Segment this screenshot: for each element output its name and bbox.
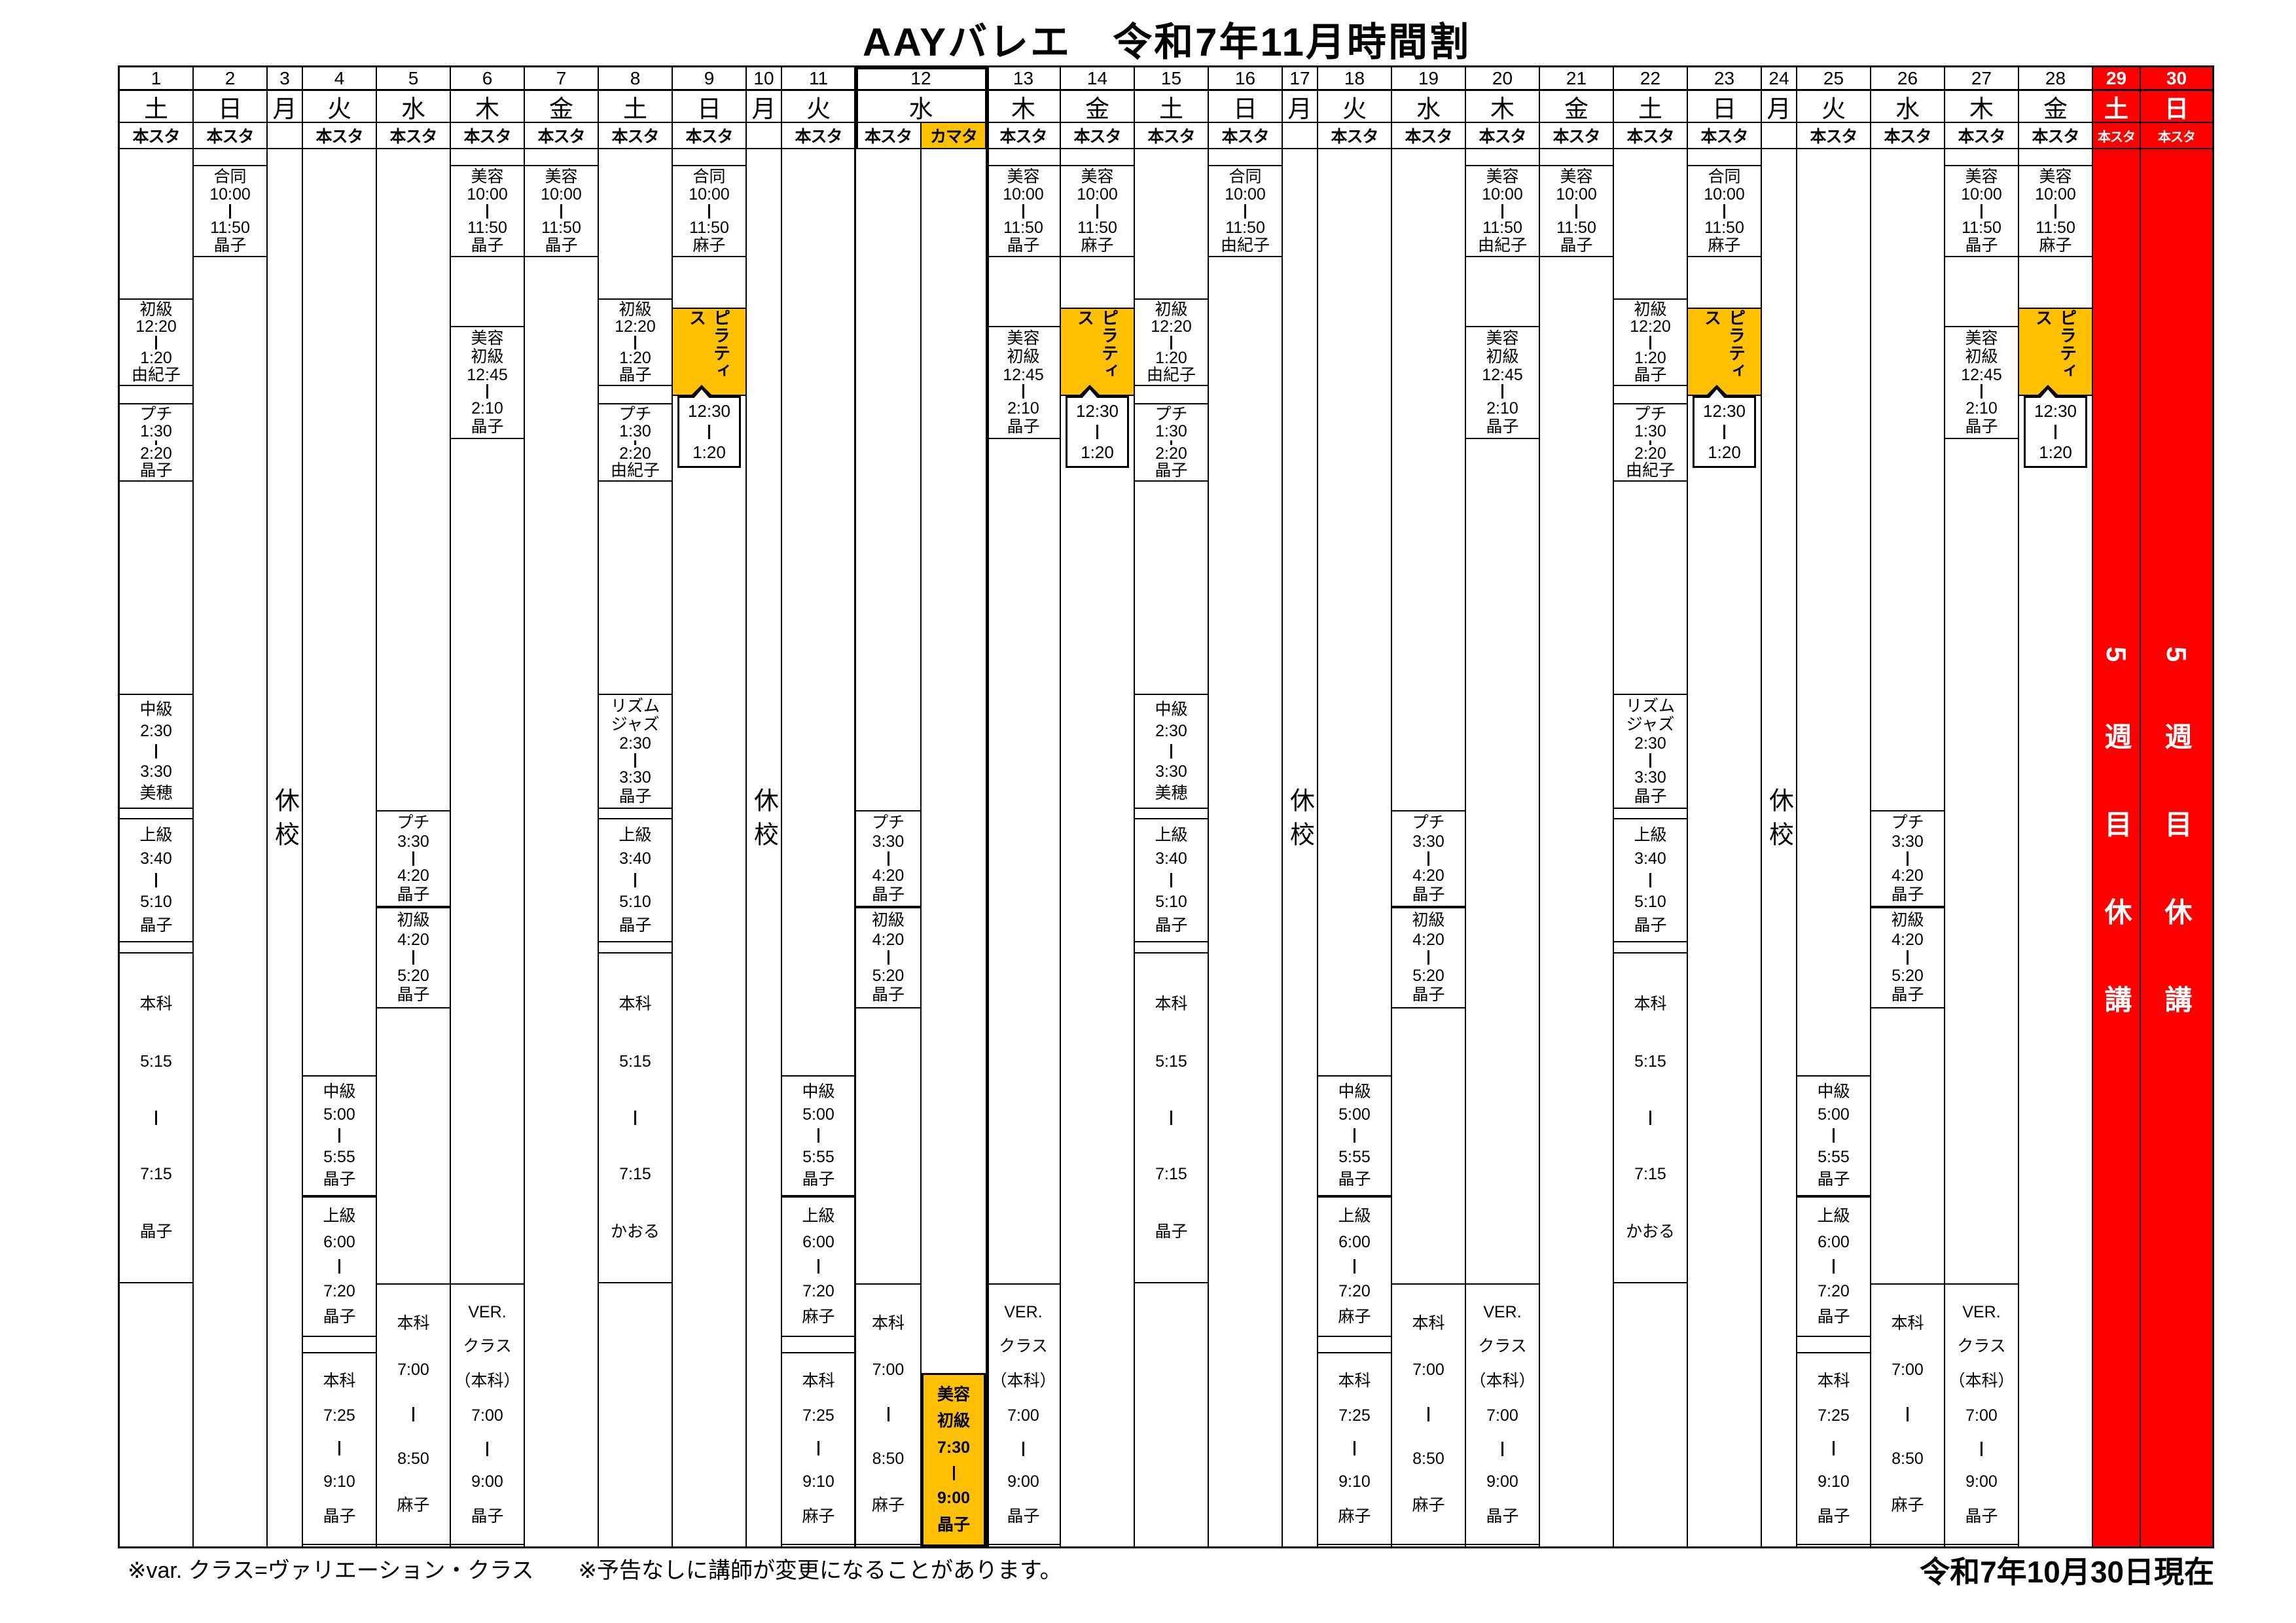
day-column-29: 29土本スタ5週目休講 — [2093, 67, 2141, 1546]
time-connector — [1907, 851, 1909, 866]
class-text-line: 6:00 — [1338, 1234, 1371, 1251]
class-text-line: 晶子 — [1412, 986, 1444, 1003]
day-schedule-area: プチ3:304:20晶子初級4:205:20晶子本科7:008:50麻子美容初級… — [856, 149, 986, 1546]
class-text-line: 5:10 — [1155, 893, 1187, 910]
class-block: VER.クラス（本科）7:009:00晶子 — [1466, 1283, 1539, 1545]
class-text-line: 本科 — [1634, 995, 1666, 1012]
time-connector — [1170, 1111, 1172, 1125]
class-text-line: 2:30 — [1634, 735, 1666, 752]
class-text-line: 晶子 — [545, 237, 577, 254]
studio-cell: 本スタ — [1688, 123, 1761, 149]
class-text-line: 晶子 — [323, 1508, 355, 1525]
class-text-line: プチ — [619, 406, 651, 423]
bubble-notch — [1708, 389, 1726, 400]
class-text-line: 初級 — [1486, 348, 1518, 365]
class-text-line: 1:20 — [619, 349, 651, 366]
time-connector — [338, 1259, 340, 1274]
class-text-line: 7:15 — [1155, 1166, 1187, 1183]
day-column-2: 2日本スタ合同10:0011:50晶子 — [194, 67, 268, 1546]
time-connector — [155, 744, 157, 758]
pilates-time-bubble: 12:301:20 — [1693, 396, 1756, 468]
class-text-line: 3:30 — [619, 769, 651, 786]
class-text-line: 上級 — [1338, 1207, 1371, 1224]
class-text-line: 2:30 — [140, 722, 172, 740]
class-block: 初級12:201:20由紀子 — [1135, 298, 1208, 386]
class-text-line: 4:20 — [397, 867, 429, 884]
day-number: 27 — [1945, 67, 2018, 91]
class-text-line: VER. — [1962, 1304, 2000, 1321]
day-number: 8 — [599, 67, 672, 91]
class-text-line: 美容 — [1560, 168, 1592, 185]
class-text-line: 晶子 — [1891, 886, 1924, 903]
day-column-13: 13木本スタ美容10:0011:50晶子美容初級12:452:10晶子VER.ク… — [987, 67, 1061, 1546]
studio-cell: 本スタ — [1466, 123, 1539, 149]
class-text-line: 5:15 — [1634, 1053, 1666, 1070]
studio-cell-kamata: カマタ — [920, 123, 986, 148]
class-text-line: 晶子 — [1338, 1171, 1371, 1188]
class-text-line: 9:10 — [1338, 1473, 1371, 1490]
class-block: 初級4:205:20晶子 — [1392, 907, 1465, 1008]
class-text-line: 本科 — [1817, 1372, 1850, 1389]
class-text-line: 6:00 — [802, 1234, 834, 1251]
day-of-week: 水 — [377, 91, 450, 123]
class-text-line: VER. — [1004, 1304, 1042, 1321]
class-text-line: 本科 — [619, 995, 651, 1012]
day-of-week: 火 — [1318, 91, 1391, 123]
class-text-line: 7:20 — [1338, 1283, 1371, 1300]
class-text-line: 10:00 — [1704, 186, 1745, 203]
time-connector — [1170, 336, 1172, 349]
day-number: 12 — [856, 67, 986, 91]
day-number: 13 — [987, 67, 1060, 91]
class-text-line: 3:30 — [872, 833, 905, 850]
class-text-line: 由紀子 — [1147, 366, 1196, 383]
class-text-line: 7:00 — [872, 1361, 905, 1378]
day-column-7: 7金本スタ美容10:0011:50晶子 — [525, 67, 599, 1546]
class-text-line: 10:00 — [541, 186, 582, 203]
day-of-week: 火 — [782, 91, 855, 123]
time-connector — [1833, 1441, 1835, 1455]
time-connector — [708, 425, 710, 439]
class-text-line: 12:20 — [1630, 318, 1671, 335]
day-column-5: 5水本スタプチ3:304:20晶子初級4:205:20晶子本科7:008:50麻… — [377, 67, 451, 1546]
class-text-line: 美容 — [471, 168, 503, 185]
time-connector — [1907, 950, 1909, 965]
class-text-line: 美容 — [1007, 330, 1039, 347]
class-text-line: 3:40 — [619, 850, 651, 867]
class-text-line: 中級 — [802, 1083, 834, 1100]
studio-cell — [1762, 123, 1796, 149]
day-of-week: 日 — [1209, 91, 1282, 123]
class-text-line: 11:50 — [1704, 219, 1744, 236]
class-block: 上級6:007:20麻子 — [1318, 1196, 1391, 1337]
day-schedule-area: 美容10:0011:50由紀子美容初級12:452:10晶子VER.クラス（本科… — [1466, 149, 1539, 1546]
time-connector — [1427, 950, 1429, 965]
class-block: 美容10:0011:50晶子 — [525, 165, 598, 257]
footnote-date: 令和7年10月30日現在 — [1920, 1548, 2214, 1592]
class-text-line: 5:15 — [1155, 1053, 1187, 1070]
class-text-line: 7:15 — [619, 1166, 651, 1183]
class-text-line: 11:50 — [467, 219, 507, 236]
time-connector — [1833, 1259, 1835, 1274]
class-text-line: 3:30 — [140, 763, 172, 780]
day-column-8: 8土本スタ初級12:201:20晶子プチ1:302:20由紀子リズムジャズ2:3… — [599, 67, 673, 1546]
day-column-15: 15土本スタ初級12:201:20由紀子プチ1:302:20晶子中級2:303:… — [1135, 67, 1209, 1546]
class-text-line: 1:20 — [692, 442, 726, 463]
timetable-page: AAYバレエ 令和7年11月時間割 1土本スタ初級12:201:20由紀子プチ1… — [0, 0, 2296, 1623]
class-text-line: 美容 — [545, 168, 577, 185]
class-text-line: 合同 — [692, 168, 725, 185]
class-text-line: 美容 — [1486, 168, 1518, 185]
class-text-line: 3:30 — [1155, 763, 1187, 780]
day-schedule-area: 休校 — [268, 149, 302, 1546]
class-text-line: クラス — [463, 1338, 512, 1355]
class-text-line: 3:30 — [1892, 833, 1924, 850]
class-text-line: 初級 — [872, 912, 905, 929]
class-text-line: 麻子 — [1708, 237, 1740, 254]
day-of-week: 木 — [1466, 91, 1539, 123]
class-text-line: 12:30 — [1076, 401, 1119, 421]
class-text-line: 1:30 — [619, 423, 651, 440]
class-text-line: 中級 — [323, 1083, 355, 1100]
studio-cell: 本スタ — [673, 123, 745, 149]
class-text-line: 5:10 — [619, 893, 651, 910]
time-connector — [1981, 384, 1982, 399]
class-text-line: 1:30 — [140, 423, 172, 440]
day-schedule-area: 美容10:0011:50麻子ピラティス12:301:20 — [2019, 149, 2092, 1546]
day-number: 26 — [1871, 67, 1944, 91]
time-connector — [1170, 744, 1172, 758]
class-text-line: 2:30 — [619, 735, 651, 752]
class-text-line: （本科） — [1469, 1372, 1535, 1389]
day-column-18: 18火本スタ中級5:005:55晶子上級6:007:20麻子本科7:259:10… — [1318, 67, 1392, 1546]
day-column-25: 25火本スタ中級5:005:55晶子上級6:007:20晶子本科7:259:10… — [1797, 67, 1871, 1546]
class-text-line: 晶子 — [1486, 418, 1518, 435]
class-text-line: 11:50 — [1482, 219, 1522, 236]
class-text-line: 初級 — [619, 301, 651, 318]
day-schedule-area: 美容10:0011:50麻子ピラティス12:301:20 — [1061, 149, 1134, 1546]
class-text-line: 由紀子 — [1478, 237, 1527, 254]
class-text-line: 10:00 — [209, 186, 251, 203]
bubble-notch — [2039, 389, 2057, 400]
time-connector — [486, 1442, 488, 1456]
class-text-line: 9:10 — [1818, 1473, 1850, 1490]
studio-cell-main: 本スタ — [856, 123, 920, 148]
class-text-line: 本科 — [139, 995, 172, 1012]
class-text-line: 晶子 — [471, 418, 503, 435]
class-text-line: 9:10 — [323, 1473, 355, 1490]
time-connector — [1022, 204, 1024, 219]
class-text-line: 11:50 — [1556, 219, 1596, 236]
class-text-line: 4:20 — [1892, 867, 1924, 884]
time-connector — [1833, 1128, 1835, 1143]
class-text-line: 美容 — [937, 1386, 970, 1403]
time-connector — [1354, 1128, 1355, 1143]
day-schedule-area: 初級12:201:20晶子プチ1:302:20由紀子リズムジャズ2:303:30… — [1614, 149, 1687, 1546]
class-text-line: 麻子 — [1338, 1308, 1371, 1325]
class-text-line: 晶子 — [397, 986, 429, 1003]
studio-cell: 本スタ — [377, 123, 450, 149]
class-text-line: 6:00 — [1818, 1234, 1850, 1251]
class-block: 本科7:259:10晶子 — [1797, 1352, 1870, 1545]
pilates-label: ピラティス — [685, 309, 734, 395]
studio-cell: 本スタ — [525, 123, 598, 149]
class-block: プチ1:302:20由紀子 — [599, 403, 672, 482]
class-text-line: 晶子 — [1965, 237, 1998, 254]
class-text-line: 麻子 — [692, 237, 725, 254]
class-block: 美容10:0011:50由紀子 — [1466, 165, 1539, 257]
time-connector — [1575, 204, 1577, 219]
day-of-week: 水 — [856, 91, 986, 123]
closed-label: 休校 — [1761, 787, 1797, 855]
day-schedule-area: プチ3:304:20晶子初級4:205:20晶子本科7:008:50麻子 — [377, 149, 450, 1546]
class-text-line: 晶子 — [1817, 1308, 1850, 1325]
time-connector — [1354, 1441, 1355, 1455]
day-number: 17 — [1283, 67, 1317, 91]
class-text-line: 晶子 — [1634, 366, 1666, 383]
pilates-time-bubble: 12:301:20 — [2024, 396, 2087, 468]
class-text-line: （本科） — [454, 1372, 520, 1389]
class-text-line: 5:00 — [1338, 1106, 1371, 1123]
class-text-line: 5:20 — [872, 967, 905, 984]
day-schedule-area: 中級5:005:55晶子上級6:007:20麻子本科7:259:10麻子 — [782, 149, 855, 1546]
day-number: 28 — [2019, 67, 2092, 91]
studio-cell: 本スタ — [2093, 123, 2140, 149]
class-text-line: 3:30 — [1412, 833, 1444, 850]
class-text-line: 5:20 — [1412, 967, 1444, 984]
class-text-line: 1:20 — [140, 349, 172, 366]
time-connector — [708, 204, 710, 219]
class-text-line: 初級 — [1965, 348, 1998, 365]
time-connector — [1649, 336, 1651, 349]
day-number: 20 — [1466, 67, 1539, 91]
day-number: 25 — [1797, 67, 1870, 91]
closed-label: 休校 — [746, 787, 782, 855]
class-text-line: （本科） — [990, 1372, 1056, 1389]
day-column-14: 14金本スタ美容10:0011:50麻子ピラティス12:301:20 — [1061, 67, 1135, 1546]
studio-cell: 本スタ — [1209, 123, 1282, 149]
class-text-line: 上級 — [1817, 1207, 1850, 1224]
pilates-block: ピラティス — [2019, 308, 2092, 396]
class-block: 中級5:005:55晶子 — [1797, 1075, 1870, 1196]
class-text-line: 晶子 — [619, 788, 651, 805]
day-column-23: 23日本スタ合同10:0011:50麻子ピラティス12:301:20 — [1688, 67, 1762, 1546]
day-column-28: 28金本スタ美容10:0011:50麻子ピラティス12:301:20 — [2019, 67, 2093, 1546]
class-block: リズムジャズ2:303:30晶子 — [599, 694, 672, 809]
day-schedule-area: 休校 — [1762, 149, 1796, 1546]
class-text-line: 7:30 — [937, 1439, 970, 1456]
main-studio-subcolumn: プチ3:304:20晶子初級4:205:20晶子本科7:008:50麻子 — [856, 149, 920, 1546]
class-text-line: 初級 — [471, 348, 503, 365]
pilates-time-bubble: 12:301:20 — [1066, 396, 1129, 468]
studio-cell: 本スタ — [194, 123, 266, 149]
day-of-week: 金 — [525, 91, 598, 123]
class-block: 合同10:0011:50晶子 — [194, 165, 266, 257]
class-block: 本科5:157:15かおる — [1614, 952, 1687, 1283]
class-text-line: 5:00 — [323, 1106, 355, 1123]
class-block: プチ3:304:20晶子 — [1871, 810, 1944, 907]
time-connector — [1427, 1407, 1429, 1421]
class-text-line: 晶子 — [1155, 917, 1187, 934]
class-text-line: 美穂 — [139, 785, 172, 802]
class-text-line: 2:20 — [140, 445, 172, 462]
class-block: 美容10:0011:50晶子 — [1945, 165, 2018, 257]
class-text-line: 合同 — [213, 168, 246, 185]
day-column-3: 3月休校 — [268, 67, 303, 1546]
class-text-line: 9:00 — [937, 1489, 970, 1507]
class-text-line: 8:50 — [397, 1450, 429, 1467]
class-text-line: 9:00 — [1965, 1473, 1998, 1490]
class-text-line: 8:50 — [1892, 1450, 1924, 1467]
fifth-week-holiday-label: 5週目休講 — [2157, 647, 2197, 1073]
class-text-line: 7:20 — [1818, 1283, 1850, 1300]
time-connector — [486, 204, 488, 219]
day-of-week: 木 — [451, 91, 524, 123]
class-text-line: 4:20 — [397, 931, 429, 948]
footnote-variation: ※var. クラス=ヴァリエーション・クラス ※予告なしに講師が変更になることが… — [128, 1552, 1062, 1584]
day-schedule-area: 中級5:005:55晶子上級6:007:20晶子本科7:259:10晶子 — [303, 149, 376, 1546]
class-text-line: 2:10 — [471, 400, 503, 417]
class-text-line: リズム — [611, 698, 660, 715]
day-number: 4 — [303, 67, 376, 91]
pilates-label: ピラティス — [1073, 309, 1122, 395]
class-block: 中級2:303:30美穂 — [1135, 694, 1208, 809]
class-text-line: 上級 — [139, 827, 172, 844]
day-number: 24 — [1762, 67, 1796, 91]
studio-cell: 本スタ — [782, 123, 855, 149]
class-text-line: プチ — [1412, 814, 1444, 831]
class-text-line: 晶子 — [1634, 788, 1666, 805]
time-connector — [817, 1128, 819, 1143]
day-schedule-area: プチ3:304:20晶子初級4:205:20晶子本科7:008:50麻子 — [1871, 149, 1944, 1546]
class-text-line: 中級 — [1338, 1083, 1371, 1100]
class-text-line: 合同 — [1229, 168, 1261, 185]
class-text-line: 美穂 — [1155, 785, 1187, 802]
day-schedule-area: 5週目休講 — [2141, 149, 2212, 1546]
class-text-line: 1:30 — [1634, 423, 1666, 440]
day-schedule-area: プチ3:304:20晶子初級4:205:20晶子本科7:008:50麻子 — [1392, 149, 1465, 1546]
day-schedule-area: 美容10:0011:50晶子 — [525, 149, 598, 1546]
class-text-line: 11:50 — [689, 219, 729, 236]
class-text-line: 2:20 — [1155, 445, 1187, 462]
class-block: VER.クラス（本科）7:009:00晶子 — [1945, 1283, 2018, 1545]
bubble-notch — [1081, 389, 1099, 400]
class-text-line: 5:10 — [140, 893, 172, 910]
day-column-16: 16日本スタ合同10:0011:50由紀子 — [1209, 67, 1283, 1546]
class-text-line: 7:00 — [1412, 1361, 1444, 1378]
class-text-line: 12:20 — [615, 318, 656, 335]
fifth-week-holiday-label: 5週目休講 — [2096, 647, 2136, 1073]
class-text-line: 晶子 — [1155, 1223, 1187, 1240]
class-text-line: 7:25 — [1338, 1407, 1371, 1424]
class-text-line: 2:10 — [1486, 400, 1518, 417]
class-text-line: 10:00 — [1225, 186, 1266, 203]
class-block: 本科5:157:15晶子 — [120, 952, 192, 1283]
studio-cell: 本スタ — [987, 123, 1060, 149]
class-text-line: 晶子 — [139, 1223, 172, 1240]
class-text-line: 5:15 — [140, 1053, 172, 1070]
day-number: 18 — [1318, 67, 1391, 91]
day-number: 15 — [1135, 67, 1208, 91]
class-text-line: 上級 — [619, 827, 651, 844]
class-text-line: 初級 — [1412, 912, 1444, 929]
pilates-block: ピラティス — [1061, 308, 1134, 396]
class-text-line: 麻子 — [802, 1508, 834, 1525]
time-connector — [1723, 204, 1725, 219]
class-text-line: 晶子 — [1634, 917, 1666, 934]
class-text-line: 麻子 — [1081, 237, 1113, 254]
time-connector — [155, 336, 157, 349]
pilates-label: ピラティス — [2032, 309, 2080, 395]
class-text-line: 4:20 — [1412, 931, 1444, 948]
class-text-line: 12:20 — [1151, 318, 1192, 335]
class-text-line: 3:30 — [397, 833, 429, 850]
class-text-line: 合同 — [1708, 168, 1740, 185]
class-text-line: 7:20 — [802, 1283, 834, 1300]
class-text-line: 本科 — [872, 1315, 905, 1332]
class-text-line: 晶子 — [1891, 986, 1924, 1003]
time-connector — [155, 1111, 157, 1125]
class-text-line: 晶子 — [1965, 418, 1998, 435]
class-block: 上級6:007:20麻子 — [782, 1196, 855, 1337]
studio-cell — [268, 123, 302, 149]
class-text-line: 10:00 — [467, 186, 508, 203]
class-text-line: 3:40 — [1155, 850, 1187, 867]
class-text-line: 晶子 — [1007, 1508, 1039, 1525]
class-text-line: 4:20 — [872, 931, 905, 948]
class-block: 初級12:201:20晶子 — [599, 298, 672, 386]
day-column-12: 12水本スタカマタプチ3:304:20晶子初級4:205:20晶子本科7:008… — [856, 67, 987, 1546]
class-text-line: 美容 — [2039, 168, 2072, 185]
class-text-line: 本科 — [323, 1372, 355, 1389]
class-text-line: 晶子 — [1965, 1508, 1998, 1525]
day-schedule-area: 初級12:201:20晶子プチ1:302:20由紀子リズムジャズ2:303:30… — [599, 149, 672, 1546]
class-text-line: 初級 — [397, 912, 429, 929]
time-connector — [1981, 204, 1982, 219]
studio-cell: 本スタ — [451, 123, 524, 149]
time-connector — [1981, 1442, 1982, 1456]
day-of-week: 木 — [1945, 91, 2018, 123]
time-connector — [412, 851, 414, 866]
day-number: 16 — [1209, 67, 1282, 91]
time-connector — [1096, 425, 1098, 439]
class-text-line: 10:00 — [1482, 186, 1523, 203]
class-text-line: 上級 — [1155, 827, 1187, 844]
day-schedule-area: 中級5:005:55晶子上級6:007:20晶子本科7:259:10晶子 — [1797, 149, 1870, 1546]
class-text-line: 2:20 — [619, 445, 651, 462]
studio-cell — [747, 123, 781, 149]
class-text-line: 5:00 — [1818, 1106, 1850, 1123]
class-text-line: 12:30 — [2034, 401, 2077, 421]
kamata-class-block: 美容初級7:309:00晶子 — [922, 1373, 986, 1546]
class-text-line: 晶子 — [471, 1508, 503, 1525]
class-text-line: 麻子 — [802, 1308, 834, 1325]
day-column-26: 26水本スタプチ3:304:20晶子初級4:205:20晶子本科7:008:50… — [1871, 67, 1945, 1546]
class-block: リズムジャズ2:303:30晶子 — [1614, 694, 1687, 809]
class-text-line: 7:25 — [323, 1407, 355, 1424]
class-text-line: 2:10 — [1007, 400, 1039, 417]
class-text-line: 12:45 — [1482, 366, 1523, 383]
class-text-line: プチ — [1891, 814, 1924, 831]
day-schedule-area: 美容10:0011:50晶子美容初級12:452:10晶子VER.クラス（本科）… — [1945, 149, 2018, 1546]
class-text-line: 由紀子 — [1626, 462, 1675, 479]
time-connector — [817, 1441, 819, 1455]
day-schedule-area: 合同10:0011:50由紀子 — [1209, 149, 1282, 1546]
class-text-line: 1:30 — [1155, 423, 1187, 440]
day-number: 22 — [1614, 67, 1687, 91]
class-text-line: 晶子 — [397, 886, 429, 903]
class-text-line: 晶子 — [139, 462, 172, 479]
